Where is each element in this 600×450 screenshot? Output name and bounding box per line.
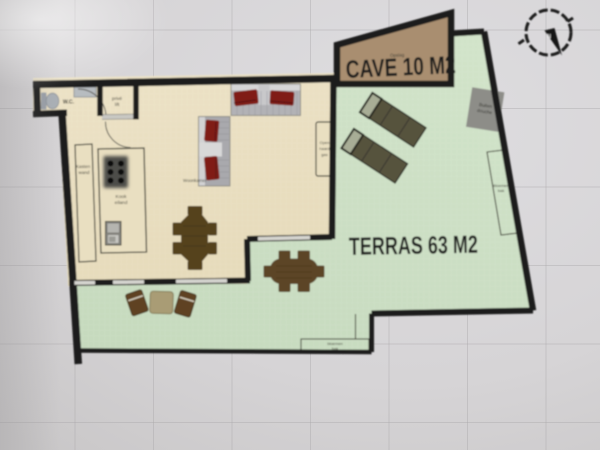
svg-text:lift: lift xyxy=(115,102,120,107)
svg-text:Kook: Kook xyxy=(116,194,128,200)
svg-text:bak: bak xyxy=(498,188,504,193)
svg-text:wand: wand xyxy=(79,170,90,175)
svg-text:Open: Open xyxy=(320,140,330,145)
svg-text:W.C.: W.C. xyxy=(63,100,75,106)
svg-text:haard: haard xyxy=(319,146,329,151)
svg-text:Kasten: Kasten xyxy=(76,164,91,169)
svg-text:eiland: eiland xyxy=(115,200,128,206)
svg-text:gas: gas xyxy=(321,152,327,157)
svg-text:privé: privé xyxy=(112,96,122,101)
svg-text:CAVE 10 M2: CAVE 10 M2 xyxy=(345,51,456,84)
svg-text:N: N xyxy=(547,34,551,40)
svg-text:Woonkamer: Woonkamer xyxy=(183,178,207,183)
svg-text:TERRAS 63 M2: TERRAS 63 M2 xyxy=(349,231,478,261)
